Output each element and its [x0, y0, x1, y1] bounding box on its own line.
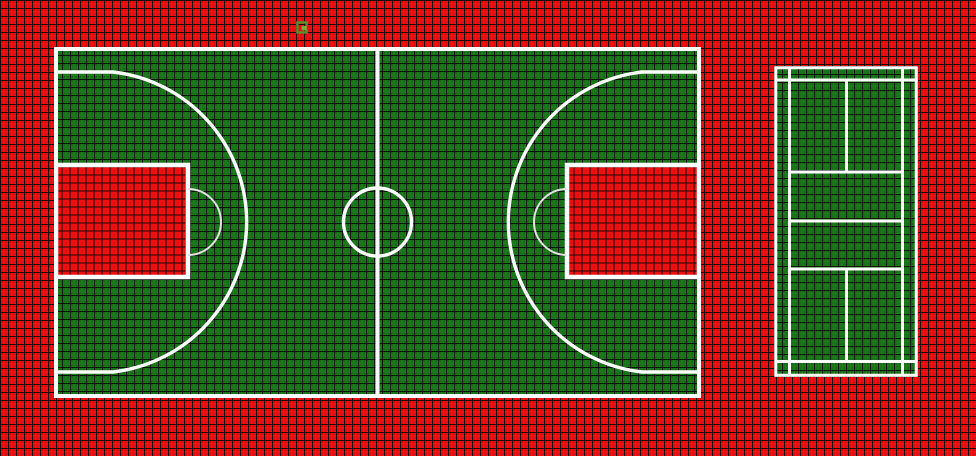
tile-canvas[interactable] — [0, 0, 976, 456]
basketball-court[interactable] — [54, 47, 701, 398]
badminton-court-markings — [774, 66, 918, 377]
right-key-paint — [567, 165, 699, 277]
basketball-court-markings — [54, 47, 701, 398]
tile-cursor-icon — [296, 21, 309, 34]
badminton-court[interactable] — [774, 66, 918, 377]
left-free-throw-arc — [188, 189, 221, 255]
right-free-throw-arc — [534, 189, 567, 255]
left-key-paint — [56, 165, 188, 277]
